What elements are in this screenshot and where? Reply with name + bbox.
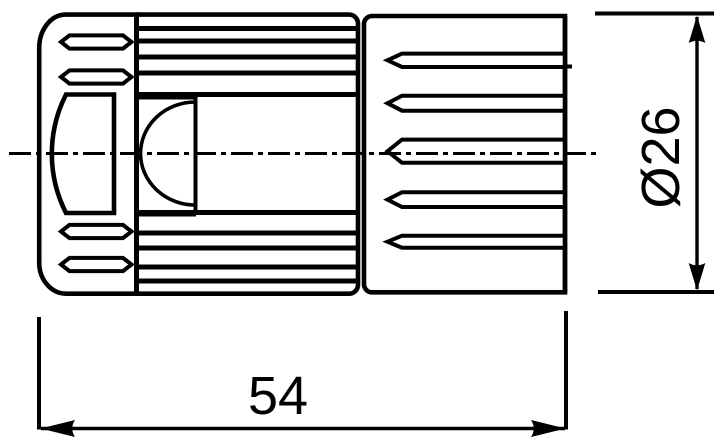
- svg-text:54: 54: [248, 366, 308, 426]
- svg-text:Ø26: Ø26: [631, 106, 691, 208]
